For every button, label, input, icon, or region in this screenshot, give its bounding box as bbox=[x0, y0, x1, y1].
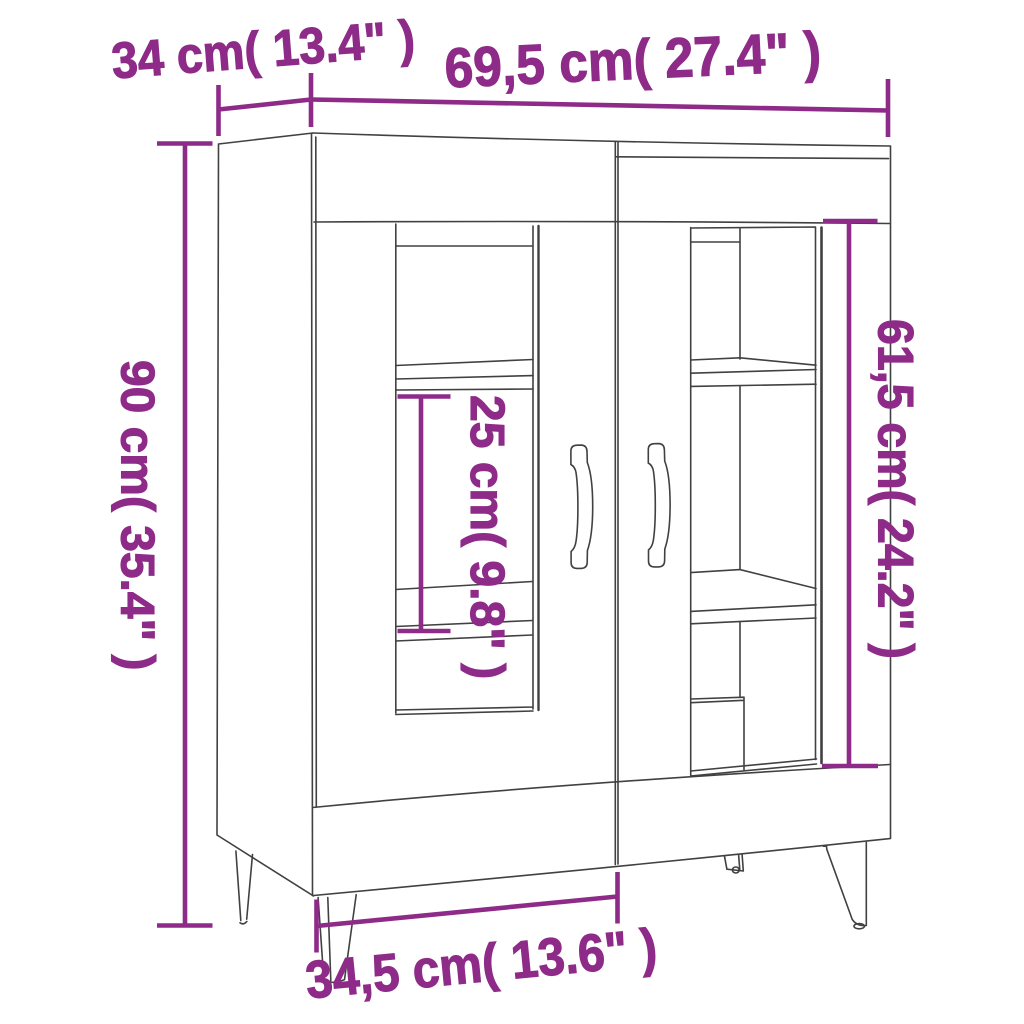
svg-text:61,5 cm( 24.2" ): 61,5 cm( 24.2" ) bbox=[867, 319, 923, 659]
svg-text:25 cm( 9.8" ): 25 cm( 9.8" ) bbox=[460, 395, 513, 679]
svg-text:90 cm( 35.4" ): 90 cm( 35.4" ) bbox=[110, 360, 162, 671]
